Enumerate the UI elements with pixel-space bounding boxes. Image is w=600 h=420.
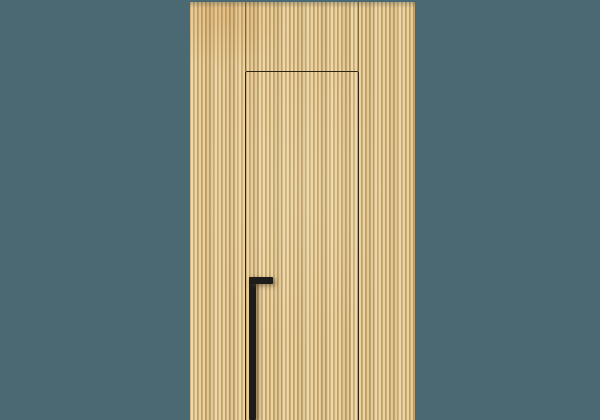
- panel-seam-left: [245, 2, 246, 71]
- panel-seam-right: [358, 2, 359, 71]
- handle-horizontal-bar: [249, 277, 273, 284]
- concealed-door-outline: [245, 71, 360, 420]
- studio-background: [0, 0, 600, 420]
- handle-vertical-bar: [249, 277, 256, 420]
